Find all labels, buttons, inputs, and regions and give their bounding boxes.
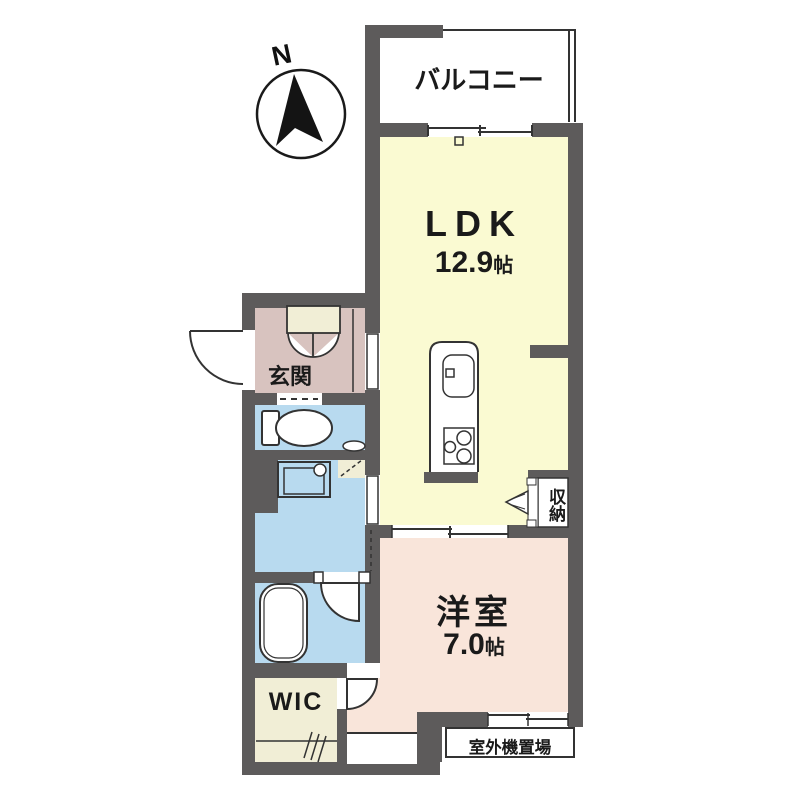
wic-door-opening <box>337 678 347 709</box>
outdoor-unit-label: 室外機置場 <box>445 734 575 758</box>
ldk-western-room-sliding-opening <box>392 525 508 538</box>
ldk-label: LDK <box>380 203 568 245</box>
wall <box>528 470 583 478</box>
wall <box>568 123 583 727</box>
western-room-door-nook-floor <box>347 678 380 712</box>
washroom-floor-lower <box>255 512 365 572</box>
wall <box>417 712 442 762</box>
ldk-size-unit: 帖 <box>493 255 513 277</box>
ldk-size-value: 12.9 <box>435 246 493 279</box>
floor-plan: N バルコニー LDK 12.9帖 玄関 収納 洋室 7.0帖 WIC 室外機置… <box>0 0 800 800</box>
toilet-room-floor <box>255 405 365 450</box>
wall <box>255 450 365 460</box>
wall <box>424 472 478 483</box>
wall <box>530 345 568 358</box>
wall <box>242 293 380 308</box>
wall <box>255 663 347 678</box>
bath-door-opening <box>314 572 370 583</box>
wall <box>365 538 380 663</box>
hall-ldk-door-opening <box>365 475 380 525</box>
wall <box>365 25 380 295</box>
toilet-sliding-door-opening <box>277 393 322 405</box>
bathroom-floor <box>255 583 365 663</box>
entrance-label: 玄関 <box>252 359 328 391</box>
wall <box>365 25 443 38</box>
storage-label: 収納 <box>543 482 568 528</box>
washroom-folding-door-corner <box>338 458 365 478</box>
western-room-window-opening <box>488 712 568 727</box>
wall <box>255 460 278 513</box>
balcony-window-opening <box>428 123 532 137</box>
western-room-size-unit: 帖 <box>485 637 505 659</box>
western-room-size-value: 7.0 <box>443 628 485 661</box>
western-room-floor-extension <box>347 712 417 732</box>
compass-icon <box>257 70 345 158</box>
balcony-label: バルコニー <box>380 60 578 97</box>
wic-label: WIC <box>255 688 337 717</box>
compass-north-label: N <box>269 38 295 72</box>
western-room-bay-floor <box>347 732 417 764</box>
western-room-size-label: 7.0帖 <box>380 628 568 662</box>
entrance-ldk-door-opening <box>365 333 380 390</box>
ldk-floor <box>380 137 568 527</box>
western-room-label: 洋室 <box>380 585 568 634</box>
ldk-size-label: 12.9帖 <box>380 246 568 280</box>
entrance-door-icon <box>190 331 243 384</box>
